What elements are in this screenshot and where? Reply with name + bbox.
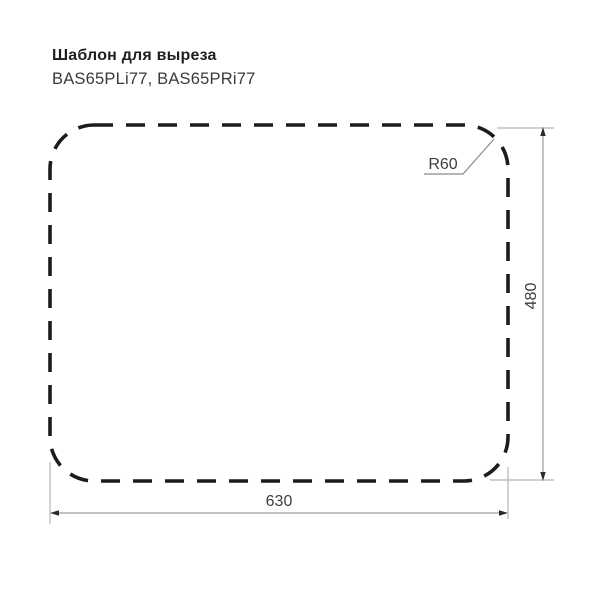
- arrowhead-right-icon: [499, 510, 508, 515]
- radius-label: R60: [428, 156, 457, 173]
- width-dimension-label: 630: [266, 493, 293, 510]
- height-dimension-label: 480: [523, 283, 540, 310]
- arrowhead-left-icon: [50, 510, 59, 515]
- cutout-drawing: 630 480 R60: [0, 0, 600, 600]
- cutout-outline: [50, 125, 508, 481]
- cutout-template-page: Шаблон для выреза BAS65PLi77, BAS65PRi77…: [0, 0, 600, 600]
